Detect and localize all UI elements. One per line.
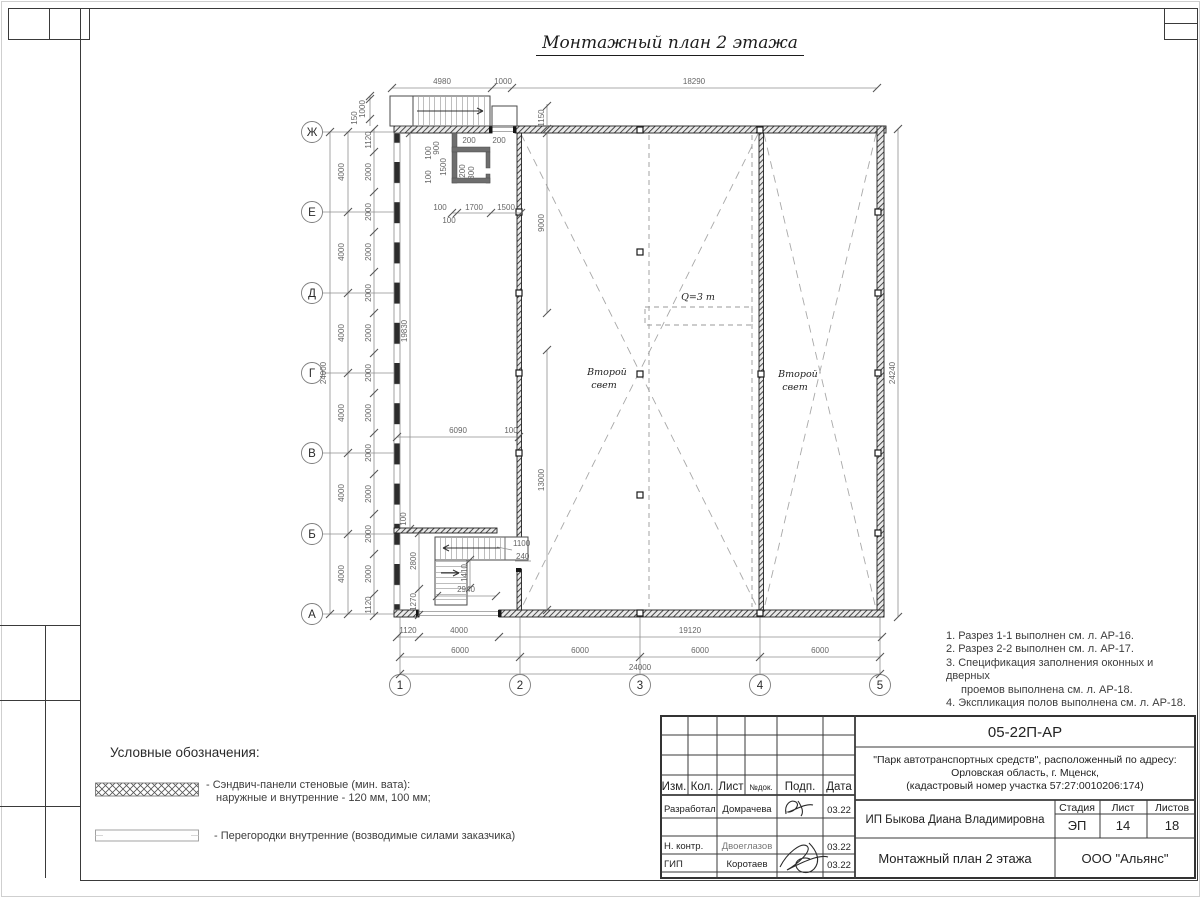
dim-label: 1100	[513, 539, 531, 548]
title-block: Изм. Кол. Лист №док. Подп. Дата Разработ…	[660, 715, 1196, 879]
legend-title: Условные обозначения:	[110, 745, 260, 760]
dim-label: 6000	[571, 646, 589, 655]
dim-label: 100	[424, 170, 433, 184]
wall-bottom-right	[499, 610, 884, 617]
wall-top-right	[515, 126, 886, 133]
row-name: Коротаев	[726, 859, 767, 870]
project-name: "Парк автотранспортных средств", располо…	[873, 754, 1176, 766]
dim-label: 4000	[337, 484, 346, 502]
crane-capacity-label: Q=3 т	[681, 292, 715, 303]
dim-label: 6090	[449, 426, 467, 435]
dim-label: 1120	[399, 626, 417, 635]
margin-stamp-line	[0, 625, 80, 626]
note-line: проемов выполнена см. л. АР-18.	[946, 684, 1198, 697]
wall-top-left	[394, 126, 492, 133]
second-light-label: свет	[591, 380, 616, 391]
dim-label: 18290	[683, 77, 706, 86]
margin-stamp-line	[0, 700, 80, 701]
project-name: (кадастровый номер участка 57:27:0010206…	[906, 780, 1143, 792]
col-header-podp: Подп.	[785, 781, 816, 793]
dim-label: 4000	[337, 243, 346, 261]
dim-label: 1410	[460, 564, 469, 582]
dim-label: 4000	[337, 324, 346, 342]
dim-label: 200	[462, 136, 476, 145]
dim-label: 2000	[364, 444, 373, 462]
axis-label: 5	[877, 680, 883, 692]
corner-box-top-right	[1164, 8, 1198, 40]
row-date: 03.22	[827, 842, 851, 853]
list-header: Лист	[1112, 802, 1135, 814]
dim-label: 100	[399, 512, 408, 526]
columns	[516, 127, 881, 616]
legend-swatch-sandwich	[95, 782, 199, 798]
dim-label: 1500	[439, 158, 448, 176]
wall-axis2-upper	[517, 133, 522, 556]
legend-swatch-partition	[95, 828, 199, 844]
axis-label: Д	[308, 288, 316, 300]
floor-plan-drawing: Ж Е Д Г В Б А 1 2 3 4 5	[285, 60, 975, 720]
row-role: Разработал	[664, 804, 716, 815]
row-date: 03.22	[827, 860, 851, 871]
wall-stair-room	[394, 528, 497, 533]
note-line: 1. Разрез 1-1 выполнен см. л. АР-16.	[946, 630, 1198, 643]
col-header-ndoc: №док.	[749, 783, 772, 792]
col-header-izm: Изм.	[662, 781, 687, 793]
axis-label: 1	[397, 680, 403, 692]
second-light-label: Второй	[586, 367, 627, 378]
legend-text: - Сэндвич-панели стеновые (мин. вата):	[206, 779, 431, 792]
corner-box-top-left	[8, 8, 90, 40]
dim-label: 200	[492, 136, 506, 145]
dim-label: 1000	[358, 100, 367, 118]
dim-label: 2000	[364, 324, 373, 342]
crane-outline	[645, 307, 752, 325]
project-name: Орловская область, г. Мценск,	[951, 767, 1099, 779]
doc-designation: 05-22П-АР	[988, 724, 1062, 741]
dim-label: 6000	[451, 646, 469, 655]
dim-label: 2000	[364, 203, 373, 221]
dim-label: 2000	[364, 485, 373, 503]
dim-label: 4000	[337, 404, 346, 422]
second-light-label: свет	[782, 382, 807, 393]
col-header-data: Дата	[826, 781, 852, 793]
dim-label: 19830	[400, 319, 409, 342]
dim-label: 4000	[337, 565, 346, 583]
axis-label: 3	[637, 680, 643, 692]
legend-text: наружные и внутренние - 120 мм, 100 мм;	[206, 792, 431, 805]
dim-label: 13000	[537, 468, 546, 491]
axis-label: Б	[308, 529, 316, 541]
stage-value: ЭП	[1068, 818, 1087, 833]
dim-label: 100	[442, 216, 456, 225]
dim-label: 2000	[364, 284, 373, 302]
dim-label: 2000	[364, 565, 373, 583]
external-stair	[390, 96, 517, 126]
dim-label: 1120	[364, 131, 373, 149]
stage-header: Стадия	[1059, 802, 1095, 814]
dim-label: 1000	[494, 77, 512, 86]
dim-label: 100	[504, 426, 518, 435]
dim-label: 1120	[364, 596, 373, 614]
listov-value: 18	[1165, 818, 1179, 833]
client-name: ИП Быкова Диана Владимировна	[865, 814, 1045, 826]
wall-axis2-lower	[517, 569, 522, 610]
axis-label: А	[308, 609, 316, 621]
dim-label: 1270	[409, 593, 418, 611]
dim-label: 4000	[337, 163, 346, 181]
axis-label: 2	[517, 680, 523, 692]
dim-label: 2000	[364, 404, 373, 422]
notes-list: 1. Разрез 1-1 выполнен см. л. АР-16. 2. …	[946, 630, 1198, 710]
drawing-title: Монтажный план 2 этажа	[500, 33, 840, 56]
margin-stamp-divider	[45, 625, 46, 878]
legend-item-sandwich-panels: - Сэндвич-панели стеновые (мин. вата): н…	[206, 779, 431, 805]
dim-label: 1500	[497, 203, 515, 212]
dim-label: 1150	[537, 109, 546, 127]
wall-left-windows	[394, 133, 400, 610]
list-value: 14	[1116, 818, 1130, 833]
dim-label: 240	[516, 552, 530, 561]
stair-landing	[492, 106, 517, 126]
dim-label: 24000	[319, 361, 328, 384]
dim-label: 24240	[888, 361, 897, 384]
grid-axes: Ж Е Д Г В Б А 1 2 3 4 5	[302, 122, 891, 696]
dim-label: 2800	[409, 552, 418, 570]
dim-label: 2000	[364, 364, 373, 382]
dim-label: 1700	[465, 203, 483, 212]
sheet-name: Монтажный план 2 этажа	[878, 851, 1032, 866]
company-name: ООО "Альянс"	[1082, 851, 1169, 866]
row-name: Двоеглазов	[722, 841, 773, 852]
second-light-label: Второй	[777, 369, 818, 380]
dim-label: 9000	[537, 214, 546, 232]
dim-label: 300	[467, 166, 476, 180]
dim-label: 2000	[364, 243, 373, 261]
dim-label: 100	[433, 203, 447, 212]
col-header-kol: Кол.	[691, 781, 714, 793]
dim-label: 2940	[457, 585, 475, 594]
row-role: ГИП	[664, 859, 683, 870]
dim-label: 900	[432, 141, 441, 155]
dim-label: 24000	[629, 663, 652, 672]
axis-label: В	[308, 448, 316, 460]
signature	[780, 843, 828, 873]
note-line: 4. Экспликация полов выполнена см. л. АР…	[946, 697, 1198, 710]
dim-label: 2000	[364, 525, 373, 543]
legend-item-partitions: - Перегородки внутренние (возводимые сил…	[214, 830, 515, 842]
axis-label: Г	[309, 368, 316, 380]
dim-label: 6000	[811, 646, 829, 655]
dim-label: 2000	[364, 163, 373, 181]
note-line: 3. Спецификация заполнения оконных и две…	[946, 657, 1198, 684]
axis-label: Е	[308, 207, 316, 219]
row-date: 03.22	[827, 805, 851, 816]
dim-label: 4000	[450, 626, 468, 635]
listov-header: Листов	[1155, 802, 1190, 814]
dim-label: 19120	[679, 626, 702, 635]
bracing-dashed	[521, 134, 876, 609]
signature	[786, 801, 813, 816]
dim-label: 4980	[433, 77, 451, 86]
note-line: 2. Разрез 2-2 выполнен см. л. АР-17.	[946, 643, 1198, 656]
row-role: Н. контр.	[664, 841, 703, 852]
axis-label: 4	[757, 680, 764, 692]
row-name: Домрачева	[722, 804, 772, 815]
margin-stamp-line	[0, 806, 80, 807]
col-header-list: Лист	[719, 781, 745, 793]
axis-label: Ж	[307, 127, 318, 139]
dim-label: 200	[458, 164, 467, 178]
dim-label: 6000	[691, 646, 709, 655]
